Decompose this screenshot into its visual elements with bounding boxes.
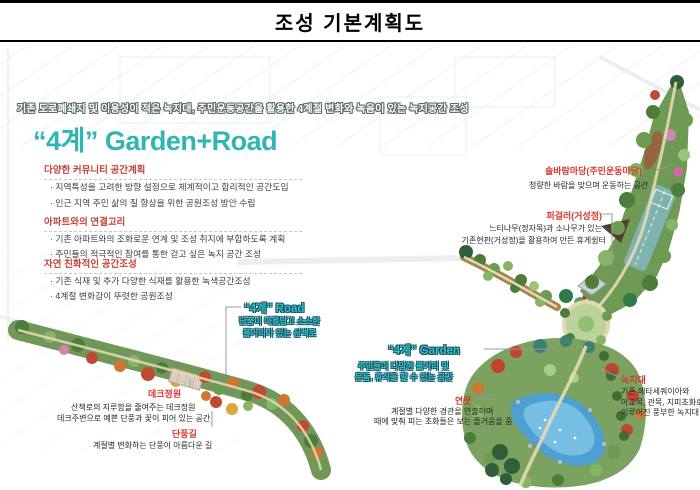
plan-slide: 조성 기본계획도 (0, 0, 700, 490)
callout-greenbelt-desc: 이루어진 풍부한 녹지대 조성 (621, 407, 700, 418)
bullet-item: · 기존 아파트와의 조화로운 연계 및 조성 취지에 부합하도록 계획 (50, 232, 285, 245)
callout-maple-desc: 계절별 변화하는 단풍이 아름다운 길 (93, 440, 212, 451)
section-heading-apartment: 아파트와의 연결고리 (44, 214, 302, 232)
callout-pergola-desc: 느티나무(정자목)과 소나무가 있는 (489, 223, 602, 234)
callout-deck-desc: 데크주변으로 예쁜 단풍과 꽃이 피어 있는 공간 (57, 413, 210, 424)
callout-pergola-label: 퍼걸러(거성정) (546, 209, 602, 222)
callout-deck-label: 데크정원 (148, 387, 181, 400)
section-heading-nature: 자연 친화적인 공간조성 (44, 256, 302, 274)
callout-solbaram-label: 솔바람마당(주민운동마당) (545, 164, 642, 177)
bullet-item: · 인근 지역 주민 삶의 질 향상을 위한 공원조성 방안 수립 (50, 196, 255, 209)
callout-garden-desc: 운동, 휴식을 할 수 있는 공간 (355, 371, 453, 383)
callout-greenbelt-label: 녹지대 (621, 373, 646, 386)
callout-deck-desc: 산책로의 지루함을 줄여주는 데크정원 (71, 402, 195, 413)
page-title: 조성 기본계획도 (275, 7, 425, 36)
bullet-item: · 4계절 변화감이 뚜렷한 공원조성 (50, 289, 173, 302)
callout-road-desc: 단풍이 아름답고 소소한 (239, 315, 320, 327)
banner-headline: 기존 도로폐쇄지 및 이용성이 적은 녹지대, 주민운동공간을 활용한 4계절 … (17, 100, 469, 115)
callout-solbaram-desc: 청량한 바람을 맞으며 운동하는 공간 (529, 180, 648, 191)
callout-greenbelt-desc: 기존 메타세쿼이아와 (621, 386, 689, 397)
callout-road-label: “4계” Road (244, 300, 304, 316)
bullet-item: · 기존 식재 및 추가 다양한 식재를 활용한 녹색공간조성 (50, 274, 251, 287)
bullet-item: · 지역특성을 고려한 방향 설정으로 체계적이고 합리적인 공간도입 (50, 180, 289, 193)
callout-garden-label: “4계” Garden (388, 342, 460, 358)
callout-maple-label: 단풍길 (172, 427, 197, 440)
callout-pond-desc: 때에 맞춰 피는 초화들은 보는 즐거움을 줌 (374, 416, 512, 427)
concept-title: “4계” Garden+Road (33, 119, 277, 158)
title-bar: 조성 기본계획도 (0, 0, 700, 42)
callout-pergola-desc: 기존현판(거성정)을 활용하여 만든 휴게쉼터 (462, 235, 606, 246)
callout-road-desc: 볼거리가 있는 산책로 (243, 327, 316, 339)
section-heading-community: 다양한 커뮤니티 공간계획 (44, 162, 302, 180)
